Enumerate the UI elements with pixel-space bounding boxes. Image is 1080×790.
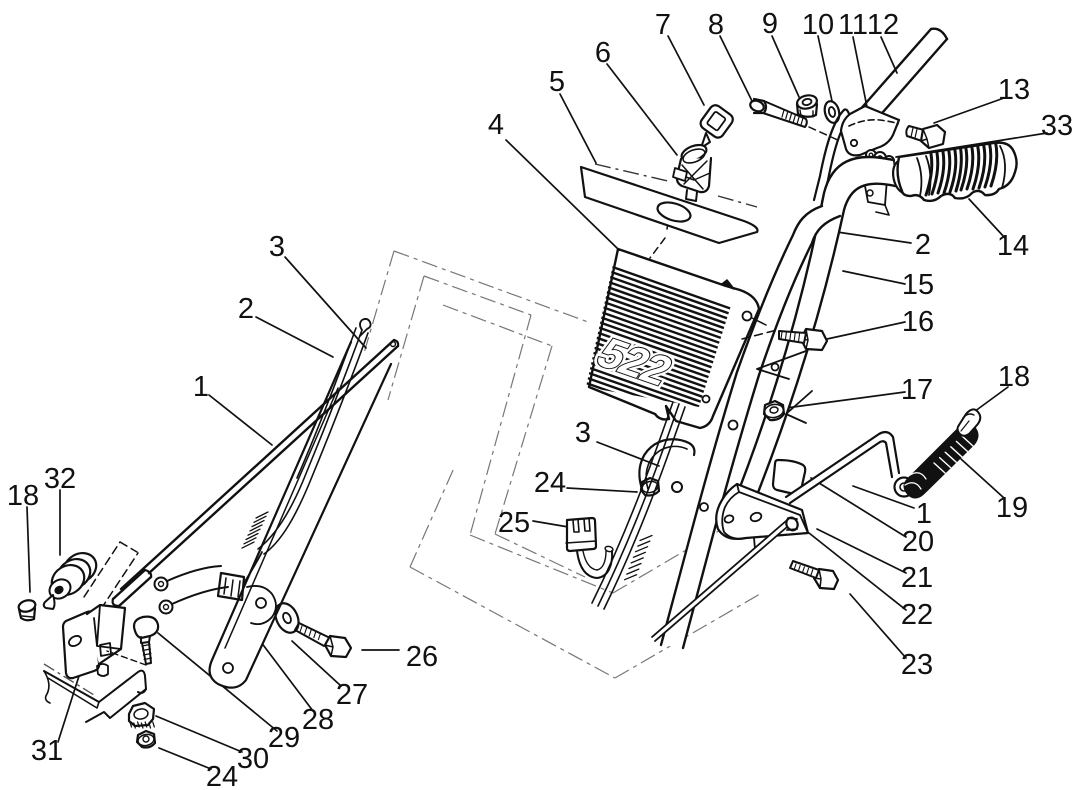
svg-text:18: 18 [998, 361, 1030, 393]
svg-text:2: 2 [238, 293, 254, 325]
svg-text:9: 9 [762, 8, 778, 40]
svg-text:28: 28 [302, 704, 334, 736]
svg-text:22: 22 [901, 599, 933, 631]
svg-text:1: 1 [193, 371, 209, 403]
svg-text:5: 5 [549, 66, 565, 98]
svg-text:18: 18 [7, 480, 39, 512]
svg-text:19: 19 [996, 492, 1028, 524]
svg-text:2: 2 [915, 229, 931, 261]
svg-text:3: 3 [269, 231, 285, 263]
svg-text:33: 33 [1041, 110, 1073, 142]
svg-text:4: 4 [488, 109, 504, 141]
svg-text:15: 15 [902, 269, 934, 301]
svg-text:27: 27 [336, 679, 368, 711]
svg-text:24: 24 [534, 467, 566, 499]
svg-text:6: 6 [595, 37, 611, 69]
svg-text:23: 23 [901, 649, 933, 681]
svg-text:24: 24 [206, 761, 238, 790]
svg-text:16: 16 [902, 306, 934, 338]
svg-text:26: 26 [406, 641, 438, 673]
svg-text:3: 3 [575, 417, 591, 449]
svg-text:25: 25 [498, 507, 530, 539]
svg-text:20: 20 [902, 526, 934, 558]
svg-text:30: 30 [237, 743, 269, 775]
svg-text:21: 21 [901, 562, 933, 594]
svg-text:8: 8 [708, 9, 724, 41]
svg-text:13: 13 [998, 74, 1030, 106]
svg-text:12: 12 [867, 9, 899, 41]
svg-text:17: 17 [901, 374, 933, 406]
